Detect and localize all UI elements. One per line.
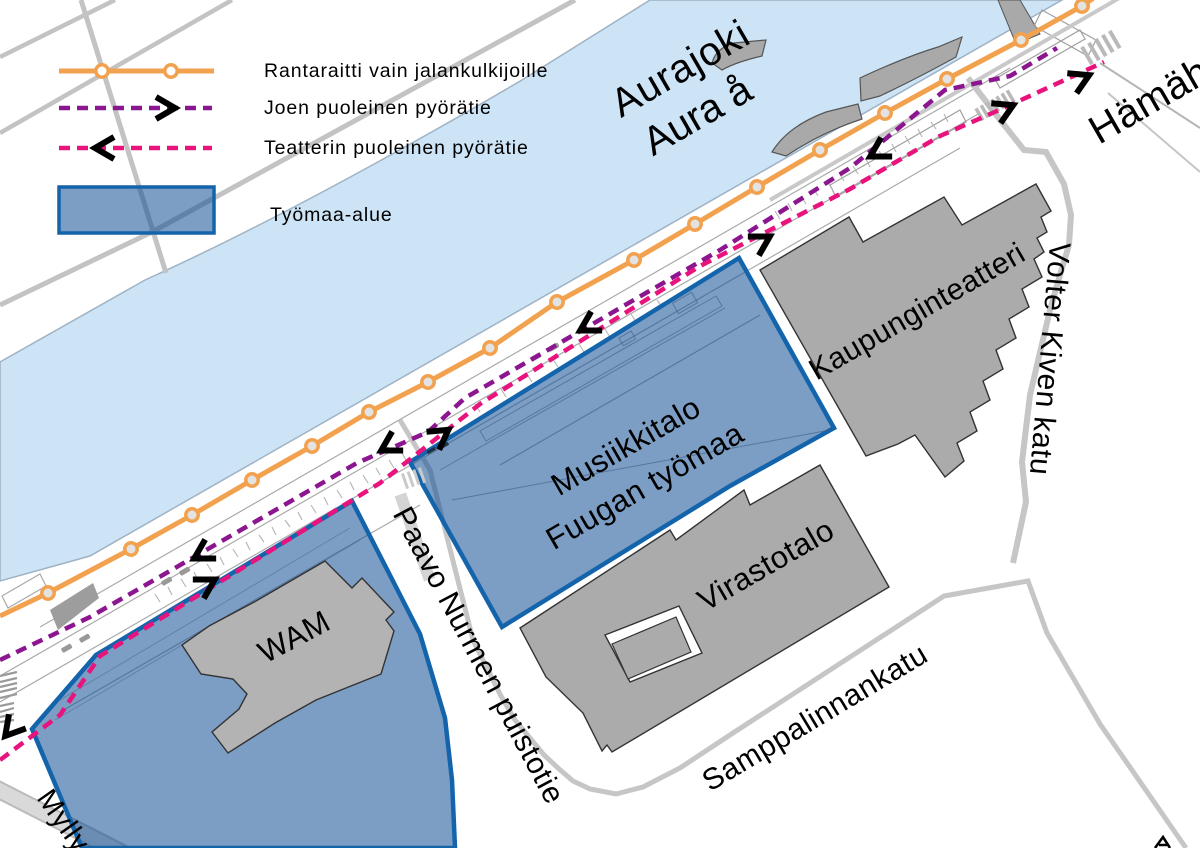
svg-text:Rantaraitti vain jalankulkijoi: Rantaraitti vain jalankulkijoille [264,60,548,82]
svg-text:Teatterin puoleinen pyörätie: Teatterin puoleinen pyörätie [264,137,529,159]
svg-text:Joen puoleinen pyörätie: Joen puoleinen pyörätie [264,97,492,119]
svg-text:Työmaa-alue: Työmaa-alue [270,204,393,226]
